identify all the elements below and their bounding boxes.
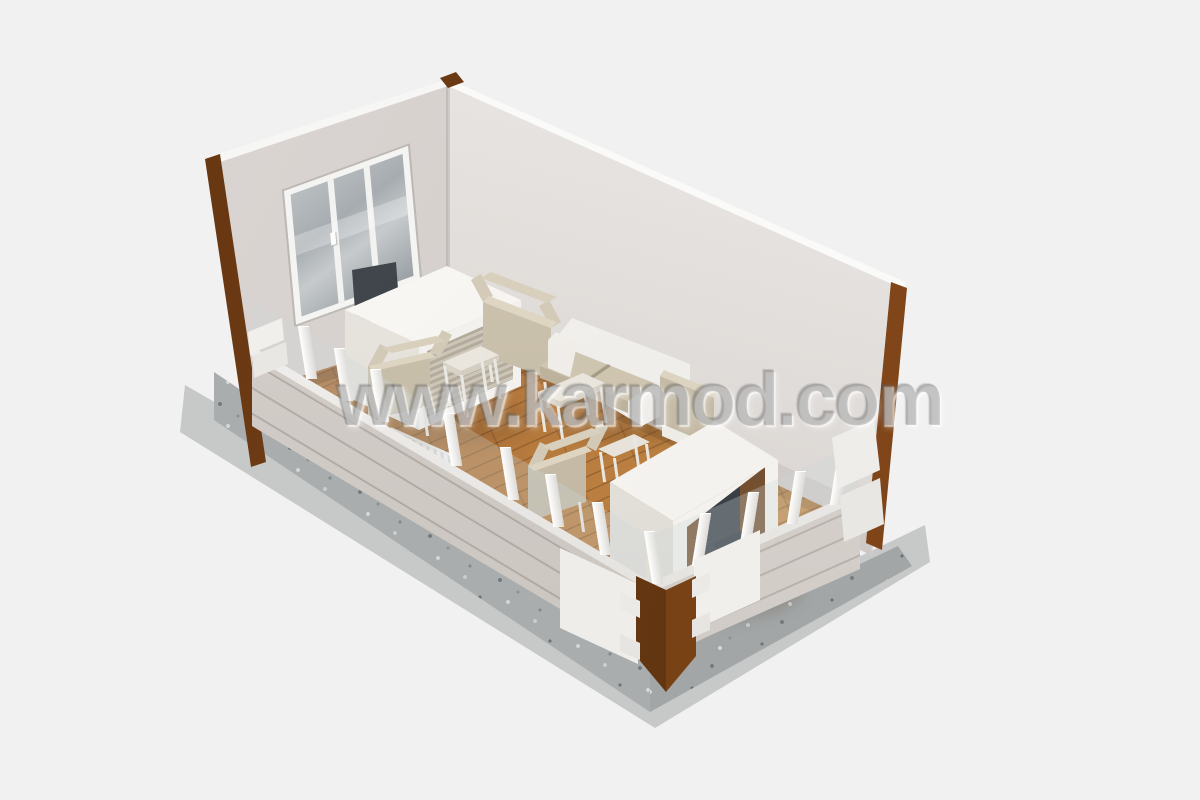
render-canvas: www.karmod.com (0, 0, 1200, 800)
window-handle (330, 231, 336, 245)
window-reflection (294, 195, 408, 255)
